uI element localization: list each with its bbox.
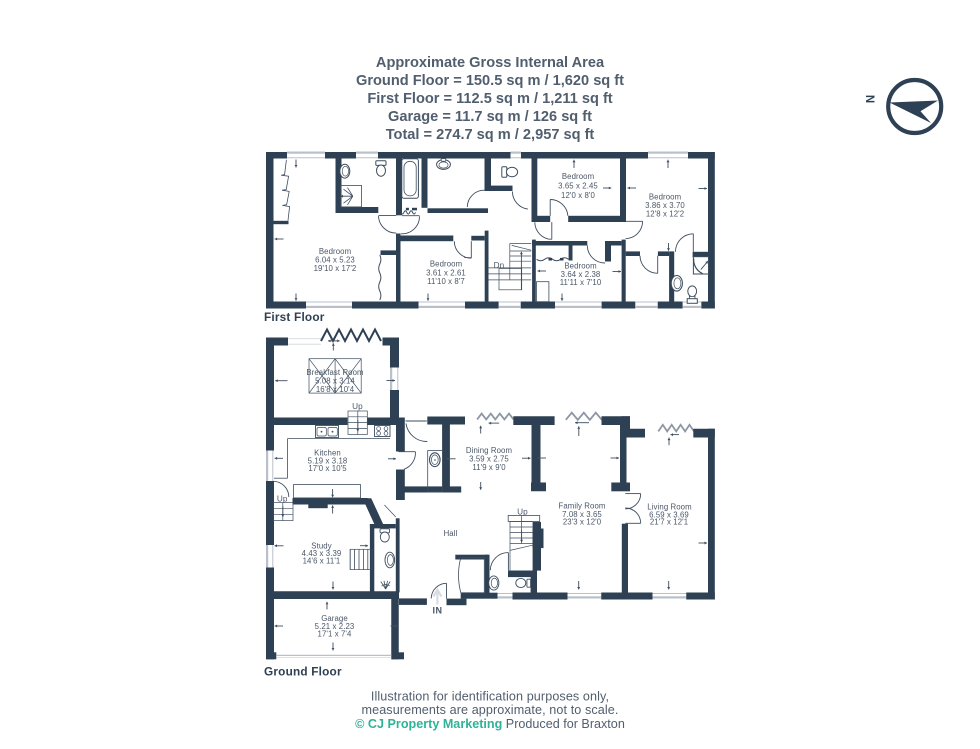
svg-text:Ground Floor: Ground Floor [264, 664, 342, 678]
svg-text:21'7 x 12'1: 21'7 x 12'1 [650, 518, 688, 527]
svg-text:11'10 x 8'7: 11'10 x 8'7 [427, 277, 465, 286]
svg-text:16'8 x 10'4: 16'8 x 10'4 [316, 385, 355, 394]
svg-text:12'8 x 12'2: 12'8 x 12'2 [646, 210, 684, 219]
svg-text:17'1 x 7'4: 17'1 x 7'4 [318, 629, 352, 638]
svg-text:23'3 x 12'0: 23'3 x 12'0 [563, 518, 602, 527]
svg-text:IN: IN [433, 606, 443, 616]
svg-text:First Floor: First Floor [264, 310, 325, 324]
svg-text:Up: Up [352, 402, 363, 411]
svg-text:11'11 x 7'10: 11'11 x 7'10 [560, 278, 602, 287]
svg-text:N: N [866, 95, 878, 103]
svg-text:17'0 x 10'5: 17'0 x 10'5 [308, 464, 347, 473]
svg-text:Hall: Hall [444, 529, 458, 538]
svg-text:3.65 x 2.45: 3.65 x 2.45 [558, 182, 598, 191]
svg-text:Ground Floor = 150.5 sq m / 1,: Ground Floor = 150.5 sq m / 1,620 sq ft [356, 73, 624, 89]
svg-text:© CJ Property Marketing Produc: © CJ Property Marketing Produced for Bra… [355, 717, 625, 731]
svg-text:measurements are approximate,: measurements are approximate, not to sca… [362, 703, 619, 717]
svg-text:Illustration for identificatio: Illustration for identification purposes… [371, 690, 609, 704]
svg-text:Up: Up [517, 508, 528, 517]
svg-text:19'10 x 17'2: 19'10 x 17'2 [314, 264, 357, 273]
svg-text:12'0 x 8'0: 12'0 x 8'0 [561, 191, 595, 200]
svg-text:Approximate Gross Internal Are: Approximate Gross Internal Area [376, 55, 605, 71]
svg-text:Total = 274.7 sq m / 2,957 sq: Total = 274.7 sq m / 2,957 sq ft [386, 127, 595, 143]
svg-text:14'6 x 11'1: 14'6 x 11'1 [303, 557, 341, 566]
svg-text:First Floor = 112.5 sq m / 1,2: First Floor = 112.5 sq m / 1,211 sq ft [367, 91, 612, 107]
svg-text:Bedroom: Bedroom [562, 172, 594, 181]
svg-text:11'9 x 9'0: 11'9 x 9'0 [472, 463, 506, 472]
svg-text:Up: Up [277, 495, 288, 504]
svg-text:Bedroom: Bedroom [430, 260, 462, 269]
svg-text:Dn: Dn [494, 261, 505, 270]
svg-text:Garage = 11.7 sq m / 126 sq ft: Garage = 11.7 sq m / 126 sq ft [388, 109, 592, 125]
